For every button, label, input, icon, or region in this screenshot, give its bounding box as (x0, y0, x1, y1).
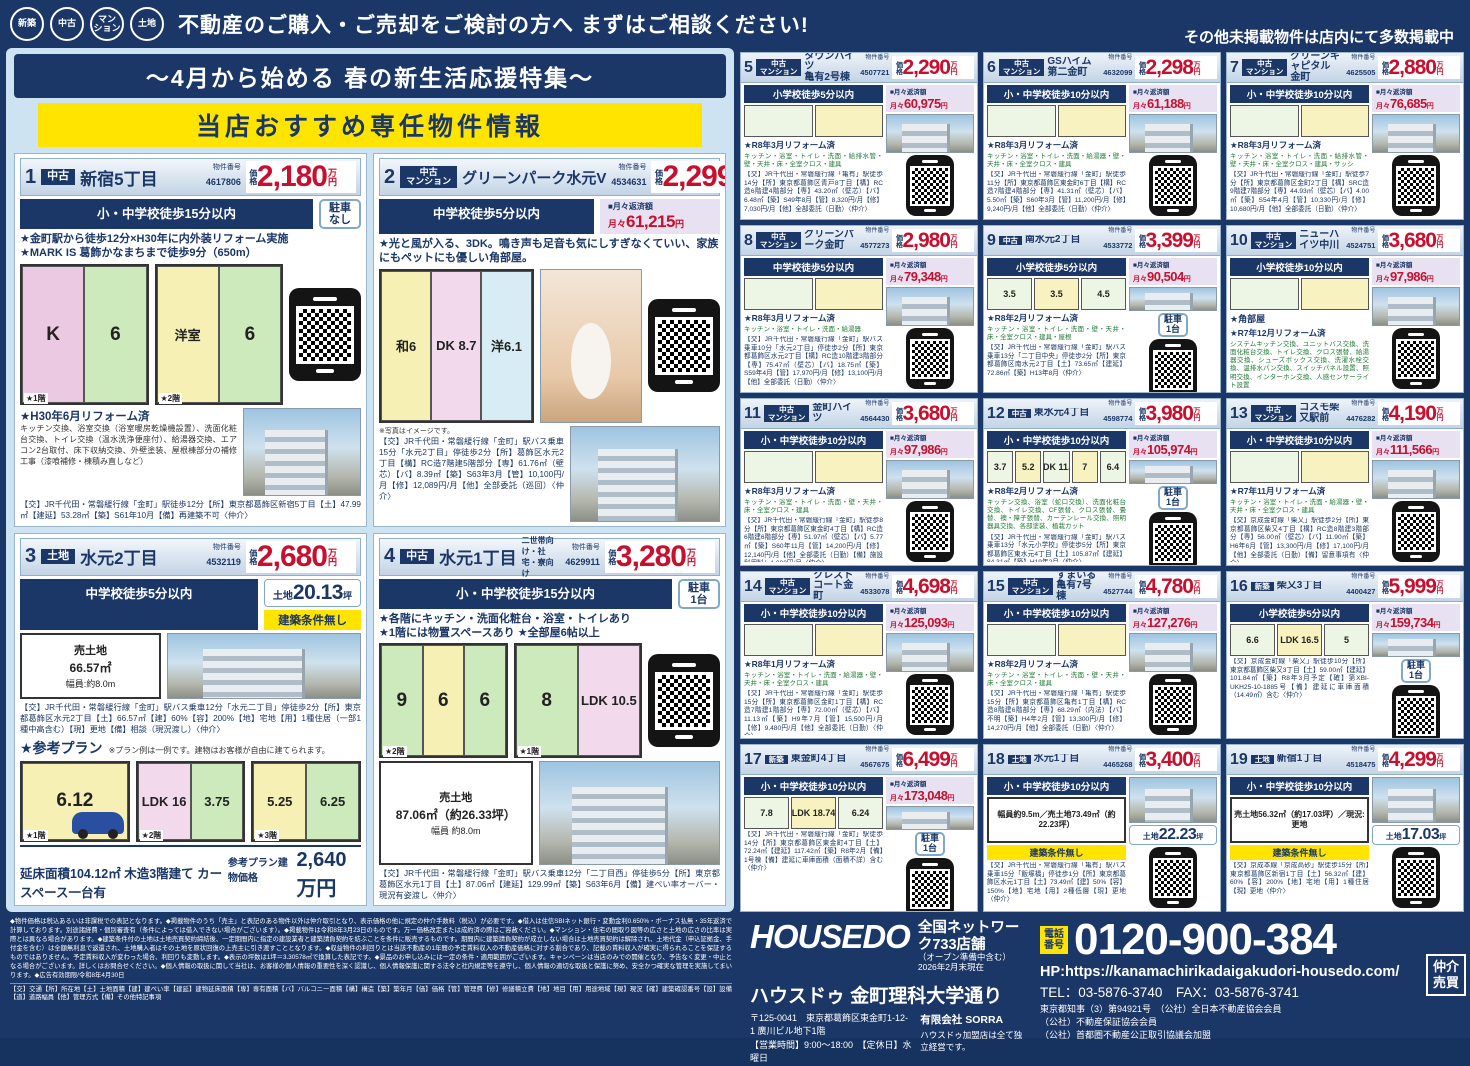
property-price: 価格3,680万円 (892, 402, 974, 425)
property-type-badge: 中古 マンション (765, 578, 811, 596)
plan-room (987, 105, 1056, 137)
mini-floor-plan (987, 105, 1126, 137)
property-photo (1129, 460, 1217, 484)
monthly-unit: 円 (1184, 274, 1191, 284)
school-distance-badge: 小・中学校徒歩10分以内 (987, 431, 1126, 449)
price-prefix: 価格 (1138, 753, 1145, 767)
property-number: 12 (987, 405, 1005, 423)
monthly-label: ■月々返済額 (1376, 605, 1456, 615)
monthly-payment: ■月々返済額 月々97,986円 (1372, 258, 1460, 285)
price-unit: 万円 (1193, 234, 1200, 248)
property-name: 水元1丁目 (439, 544, 516, 569)
qr-code-phone (906, 674, 954, 735)
reform-detail: キッチン交換、浴室交換（浴室暖房乾燥機設置）、洗面化粧台交換、トイレ交換（温水洗… (20, 424, 237, 467)
reform-title: ★R8年3月リフォーム済 (744, 485, 883, 497)
qr-code (655, 317, 713, 375)
property-description: 【交】JR千代田・常磐緩行線「亀有」駅徒歩15分【所】東京都葛飾区亀有1丁目【構… (987, 690, 1126, 735)
property-number: 10 (1230, 232, 1248, 250)
qr-code (1153, 350, 1193, 390)
qr-code (910, 685, 950, 725)
property-id-label: 物件番号 (1103, 574, 1132, 581)
monthly-unit: 円 (1434, 620, 1441, 630)
monthly-prefix: 月々 (1133, 447, 1147, 457)
property-id-label: 物件番号 (1346, 55, 1375, 62)
mini-floor-plan (1230, 278, 1369, 310)
property-price: 価格2,299万円 (651, 161, 726, 193)
reform-detail: キッチン・浴室・トイレ・洗面・給湯器・壁・天井・床・全室クロス・建具 (1230, 499, 1369, 515)
plan-room: 3.7 (987, 451, 1013, 483)
monthly-prefix: 月々 (890, 793, 904, 803)
plan-room: 7 (1072, 451, 1098, 483)
mini-floor-plan (744, 105, 883, 137)
monthly-payment: ■月々返済額 月々105,974円 (1129, 431, 1217, 458)
mini-floor-plan: 3.53.54.5 (987, 278, 1126, 310)
property-id: 物件番号4625505 (1346, 55, 1375, 79)
land-area-chip: 土地17.03坪 (1372, 825, 1460, 845)
property-price: 価格2,980万円 (892, 229, 974, 252)
qr-code (1396, 696, 1436, 736)
property-number: 14 (744, 578, 762, 596)
land-tsubo-value: 20.13 (293, 581, 343, 605)
property-id: 物件番号4567675 (860, 747, 889, 771)
plan-room: LDK 16.5 (1277, 624, 1322, 656)
property-id: 物件番号4598774 (1103, 401, 1132, 425)
property-price: 価格2,880万円 (1378, 56, 1460, 79)
monthly-value: 61,215 (626, 212, 675, 232)
property-name: グリーンパーク水元V (462, 167, 606, 188)
qr-code (910, 869, 950, 909)
qr-code-phone (1149, 339, 1197, 393)
property-name: クレストコート金町 (813, 571, 857, 602)
property-type-badge: 中古 マンション (756, 232, 802, 250)
property-id-value: 4465268 (1103, 760, 1132, 769)
phone-number: 0120-900-384 (1074, 918, 1336, 962)
plan-room (987, 624, 1056, 656)
monthly-label: ■月々返済額 (890, 86, 970, 96)
category-badge-land: 土地 (130, 7, 164, 41)
property-type-badge: 土地 (1008, 755, 1031, 765)
category-badge-new: 新築 (10, 7, 44, 41)
property-price: 価格4,780万円 (1135, 575, 1217, 598)
floor-label: ★2階 (159, 393, 183, 404)
property-price: 価格4,698万円 (892, 575, 974, 598)
price-unit: 万円 (950, 234, 957, 248)
property-name: すまいる亀有7号棟 (1056, 571, 1100, 602)
no-building-condition-badge: 建築条件無し (1230, 845, 1369, 860)
plan-summary: 延床面積104.12㎡ 木造3階建て カースペース一台有 (20, 863, 228, 901)
floor-label: ★2階 (383, 746, 407, 757)
reform-detail: キッチン・浴室・トイレ・洗面・給湯器・壁・天井・床・全室クロス・建具 (744, 672, 883, 688)
footer: ◆物件価格は税込あるいは非課税での表記となります。◆掲載物件のうち「売主」と表記… (0, 912, 1470, 1038)
plan-room: 6.6 (1230, 624, 1275, 656)
school-distance-badge: 小・中学校徒歩10分以内 (744, 777, 883, 795)
floor-plan-1f: K 6 ★1階 (20, 264, 149, 406)
monthly-label: ■月々返済額 (890, 605, 970, 615)
property-type-badge: 中古 マンション (764, 405, 810, 423)
plan-room (1301, 105, 1370, 137)
property-price: 価格3,280万円 (605, 541, 715, 573)
listing-body: 小学校徒歩5分以内 3.53.54.5 ★R8年2月リフォーム済 キッチン・浴室… (984, 256, 1220, 392)
mini-floor-plan: 7.8LDK 18.746.24 (744, 797, 883, 829)
mini-floor-plan (744, 624, 883, 656)
property-photo (1372, 777, 1460, 823)
price-unit: 万円 (950, 580, 957, 594)
property-photo (886, 287, 974, 326)
mini-floor-plan (744, 451, 883, 483)
plan-room: LDK 10.5 (578, 645, 640, 756)
floor-label: ★3階 (255, 830, 279, 841)
school-distance-badge: 中学校徒歩5分以内 (20, 579, 258, 630)
qr-code-phone (906, 858, 954, 912)
listing-card: 17 新築 東金町4丁目 物件番号4567675 価格6,499万円 小・中学校… (740, 744, 978, 912)
plan-room (815, 624, 884, 656)
monthly-value: 111,566 (1390, 442, 1432, 457)
land-diagram-area: 66.57㎡ (70, 659, 112, 676)
campaign-title: 〜4月から始める 春の新生活応援特集〜 (14, 54, 726, 98)
plan-room: 6 (84, 266, 146, 404)
property-description: 【交】JR千代田・常磐緩行線「金町」駅バス乗車12分「水元二丁目」停徒歩2分【所… (20, 702, 361, 735)
reform-detail: キッチン・浴室・トイレ・洗面・壁・天井・床・全室クロス・建具 (744, 499, 883, 515)
property-id-value: 4524751 (1346, 241, 1375, 250)
reform-detail: キッチン・浴室・トイレ・洗面・壁・天井・床・全室クロス・建具・屋根 (987, 326, 1126, 342)
property-id: 物件番号4632099 (1103, 55, 1132, 79)
parking-badge: 駐車 1台 (678, 579, 720, 609)
property-type-badge: 土地 (1251, 755, 1274, 765)
price-unit: 万円 (950, 407, 957, 421)
property-id: 物件番号4400427 (1346, 574, 1375, 598)
property-name: 柴又3丁目 (1277, 581, 1343, 592)
price-value: 3,280 (616, 542, 686, 572)
property-photo (1129, 777, 1217, 823)
listing-body: 小学校徒歩5分以内 ★R8年3月リフォーム済 キッチン・浴室・トイレ・洗面・給排… (741, 83, 977, 219)
mini-floor-plan (1230, 105, 1369, 137)
property-description: 【交】JR千代田・常磐緩行線「金町」駅徒歩14分【所】東京都葛飾区東金町4丁目【… (744, 831, 883, 908)
plan-room: 8 (516, 645, 578, 756)
monthly-value: 76,685 (1390, 96, 1427, 111)
property-description: 【交】京成金町線「柴又」駅徒歩10分【所】東京都葛飾区柴又3丁目【土】59.00… (1230, 658, 1369, 735)
corner-room-note: ★角部屋 (1230, 312, 1369, 325)
monthly-unit: 円 (1427, 101, 1434, 111)
property-id-value: 4577273 (860, 241, 889, 250)
phone-badge: 電話 番号 (1040, 926, 1068, 954)
reference-price-label: 参考プラン建物価格 (228, 854, 293, 884)
listing-header: 9 中古 南水元2丁目 物件番号4533772 価格3,399万円 (984, 226, 1220, 256)
listing-card: 9 中古 南水元2丁目 物件番号4533772 価格3,399万円 小学校徒歩5… (983, 225, 1221, 393)
plan-room (1230, 451, 1299, 483)
property-name: コスモ柴又駅前 (1299, 403, 1343, 424)
monthly-label: ■月々返済額 (890, 778, 970, 788)
land-diagram-width: 幅員:約8.0m (66, 677, 116, 690)
reform-title: ★R8年1月リフォーム済 (744, 658, 883, 670)
price-value: 2,980 (902, 230, 950, 251)
property-id: 物件番号4476282 (1346, 401, 1375, 425)
price-unit: 万円 (950, 753, 957, 767)
listing-header: 7 中古 マンション グリーンキャピタル 金町 物件番号4625505 価格2,… (1227, 53, 1463, 83)
reform-detail: キッチン・浴室・トイレ・洗面・給排水管・壁・天井・床・全室クロス・建具・サッシ (1230, 153, 1369, 169)
monthly-value: 127,276 (1147, 615, 1191, 630)
property-name: 水元2丁目 (80, 544, 157, 569)
price-unit: 万円 (950, 61, 957, 75)
main-headline: 不動産のご購入・ご売却をご検討の方へ まずはご相談ください! (178, 9, 809, 39)
price-unit: 万円 (327, 168, 336, 186)
abbreviation-legend: 【交】交通【所】所在地【土】土地面積【建】建ぺい率【建延】建物延床面積【専】専有… (10, 983, 732, 1004)
listing-header: 17 新築 東金町4丁目 物件番号4567675 価格6,499万円 (741, 745, 977, 775)
property-id-value: 4507721 (860, 68, 889, 77)
property-number: 16 (1230, 578, 1248, 596)
property-type-badge: 中古 マンション (756, 59, 802, 77)
land-diagram: 売土地 87.06㎡（約26.33坪） 幅員 約8.0m (379, 761, 533, 865)
property-price: 価格2,180万円 (246, 161, 356, 193)
land-diagram-area: 87.06㎡（約26.33坪） (396, 806, 516, 823)
sales-points: ★各階にキッチン・洗面化粧台・浴室・トイレあり ★1階には物置スペースあり ★全… (379, 612, 720, 641)
property-id: 物件番号4518475 (1346, 747, 1375, 771)
qr-code (655, 672, 713, 730)
mini-floor-plan (1230, 451, 1369, 483)
monthly-unit: 円 (1427, 274, 1434, 284)
website-url[interactable]: HP:https://kanamachirikadaigakudori-hous… (1040, 964, 1416, 980)
property-id-value: 4632099 (1103, 68, 1132, 77)
property-id-label: 物件番号 (860, 747, 889, 754)
property-id-label: 物件番号 (206, 164, 241, 172)
property-id-value: 4527744 (1103, 587, 1132, 596)
property-number: 3 (25, 545, 36, 568)
land-diagram: 幅員約9.5m／売土地73.49㎡（約22.23坪） (987, 797, 1126, 843)
featured-card-2: 2 中古 マンション グリーンパーク水元V 物件番号4534631 価格2,29… (373, 153, 726, 527)
plan-room (744, 451, 813, 483)
price-prefix: 価格 (1138, 61, 1145, 75)
property-description: 【交】JR千代田・常磐緩行線「金町」駅徒歩12分【所】東京都葛飾区新宿5丁目【土… (20, 499, 361, 521)
property-id: 物件番号4534631 (611, 164, 646, 189)
property-id: 物件番号4465268 (1103, 747, 1132, 771)
footer-disclaimer: ◆物件価格は税込あるいは非課税での表記となります。◆掲載物件のうち「売主」と表記… (0, 912, 742, 1038)
property-description: 【交】京成金町線「柴又」駅徒歩2分【所】東京都葛飾区柴又4丁目【構】RC造8階建… (1230, 517, 1369, 562)
plan-room: 洋6.1 (481, 271, 531, 421)
reference-plan-3f: 5.25 6.25 ★3階 (251, 761, 361, 842)
price-value: 3,980 (1145, 403, 1193, 424)
listing-header: 8 中古 マンション グリーンパーク金町 物件番号4577273 価格2,980… (741, 226, 977, 256)
photo-note: ※写真はイメージです。 (379, 426, 564, 436)
qr-code (1153, 523, 1193, 563)
reform-title: ★R8年2月リフォーム済 (987, 485, 1126, 497)
reform-title: ★R8年3月リフォーム済 (1230, 139, 1369, 151)
property-id: 物件番号4524751 (1346, 228, 1375, 252)
land-label: 土地 (1143, 831, 1159, 842)
property-photo (1372, 287, 1460, 326)
land-tsubo-value: 17.03 (1402, 826, 1440, 844)
property-name: タウンハイツ 亀有2号棟 (804, 52, 857, 83)
listing-header: 5 中古 マンション タウンハイツ 亀有2号棟 物件番号4507721 価格2,… (741, 53, 977, 83)
price-prefix: 価格 (1381, 407, 1388, 421)
monthly-prefix: 月々 (890, 447, 904, 457)
floor-label: ★1階 (24, 393, 48, 404)
property-price: 価格4,190万円 (1378, 402, 1460, 425)
property-name: 水元1丁目 (1034, 754, 1100, 765)
qr-code-phone (1392, 847, 1440, 908)
floor-label: ★2階 (140, 830, 164, 841)
monthly-unit: 円 (941, 101, 948, 111)
property-photo (886, 114, 974, 153)
school-distance-badge: 小学校徒歩5分以内 (744, 85, 883, 103)
qr-code-phone (1149, 155, 1197, 216)
listing-card: 12 中古 東水元4丁目 物件番号4598774 価格3,980万円 小・中学校… (983, 398, 1221, 566)
parking-badge: 駐車 1台 (1158, 313, 1188, 337)
price-prefix: 価格 (895, 753, 902, 767)
price-value: 2,180 (257, 162, 327, 192)
price-value: 3,680 (902, 403, 950, 424)
monthly-unit: 円 (941, 447, 948, 457)
qr-code-phone (906, 155, 954, 216)
qr-code-phone (906, 501, 954, 562)
property-id-value: 4629911 (565, 557, 600, 567)
listing-body: 小・中学校徒歩10分以内 7.8LDK 18.746.24 【交】JR千代田・常… (741, 775, 977, 911)
property-price: 価格6,499万円 (892, 748, 974, 771)
property-id-value: 4533772 (1103, 241, 1132, 250)
school-distance-badge: 小・中学校徒歩15分以内 (20, 199, 313, 229)
monthly-payment: ■月々返済額 月々127,276円 (1129, 604, 1217, 631)
monthly-unit: 円 (1432, 447, 1439, 457)
listing-header: 16 新築 柴又3丁目 物件番号4400427 価格5,999万円 (1227, 572, 1463, 602)
monthly-payment: ■月々返済額 月々159,734円 (1372, 604, 1460, 631)
floor-plan-1f: 8 LDK 10.5 ★1階 (514, 643, 643, 758)
listing-card: 7 中古 マンション グリーンキャピタル 金町 物件番号4625505 価格2,… (1226, 52, 1464, 220)
floor-label: ★1階 (24, 830, 48, 841)
qr-code (910, 166, 950, 206)
property-id-value: 4625505 (1346, 68, 1375, 77)
listing-header: 15 中古 マンション すまいる亀有7号棟 物件番号4527744 価格4,78… (984, 572, 1220, 602)
monthly-payment: ■月々返済額 月々61,215円 (600, 199, 720, 234)
qr-code-phone (648, 299, 720, 392)
listing-body: 小・中学校徒歩10分以内 幅員約9.5m／売土地73.49㎡（約22.23坪） … (984, 775, 1220, 911)
license-line: 東京都知事（3）第94921号 （公社）全日本不動産協会会員 (1040, 1003, 1416, 1016)
price-prefix: 価格 (249, 549, 257, 565)
land-diagram-title: 売土地 (74, 642, 107, 658)
listings-grid: 5 中古 マンション タウンハイツ 亀有2号棟 物件番号4507721 価格2,… (740, 52, 1464, 912)
property-photo (1372, 460, 1460, 499)
price-prefix: 価格 (1381, 753, 1388, 767)
monthly-value: 125,093 (904, 615, 948, 630)
price-value: 4,299 (1388, 749, 1436, 770)
price-unit: 万円 (327, 548, 336, 566)
plan-room: 4.5 (1081, 278, 1126, 310)
property-photo (1129, 287, 1217, 311)
property-photo (886, 460, 974, 499)
property-type-badge: 中古 (41, 169, 75, 185)
floor-plan: 和6 DK 8.7 洋6.1 (379, 269, 534, 423)
reform-title: ★R8年3月リフォーム済 (744, 139, 883, 151)
monthly-label: ■月々返済額 (890, 259, 970, 269)
qr-code-phone (289, 288, 361, 381)
price-unit: 万円 (1193, 753, 1200, 767)
property-id-label: 物件番号 (860, 228, 889, 235)
property-name: 新宿1丁目 (1277, 754, 1343, 765)
qr-code (910, 512, 950, 552)
school-distance-badge: 中学校徒歩5分以内 (744, 258, 883, 276)
monthly-label: ■月々返済額 (1376, 86, 1456, 96)
listing-header: 19 土地 新宿1丁目 物件番号4518475 価格4,299万円 (1227, 745, 1463, 775)
property-number: 7 (1230, 59, 1239, 77)
parking-badge: 駐車 1台 (915, 832, 945, 856)
monthly-label: ■月々返済額 (1376, 259, 1456, 269)
plan-room (1058, 624, 1127, 656)
monthly-value: 159,734 (1390, 615, 1434, 630)
store-name: ハウスドゥ 金町理科大学通り (750, 981, 1026, 1008)
property-number: 19 (1230, 751, 1248, 769)
property-id: 物件番号4577273 (860, 228, 889, 252)
monthly-unit: 円 (941, 274, 948, 284)
property-id-value: 4598774 (1103, 414, 1132, 423)
property-id-label: 物件番号 (565, 544, 600, 552)
price-value: 3,399 (1145, 230, 1193, 251)
school-distance-badge: 小・中学校徒歩10分以内 (744, 604, 883, 622)
property-name: グリーンキャピタル 金町 (1290, 52, 1343, 83)
reference-plan-title: ★参考プラン (20, 738, 103, 758)
monthly-prefix: 月々 (1376, 274, 1390, 284)
qr-code-phone (1149, 674, 1197, 735)
property-description: 【交】JR千代田・常磐緩行線「金町」駅バス乗車15分「水元2丁目」停徒歩2分【所… (379, 436, 564, 502)
no-building-condition-badge: 建築条件無し (987, 845, 1126, 860)
property-name: 東水元4丁目 (1034, 408, 1100, 419)
property-number: 17 (744, 751, 762, 769)
property-id: 物件番号4527744 (1103, 574, 1132, 598)
store-hours: 【営業時間】9:00〜18:00 【定休日】水曜日 (750, 1039, 912, 1066)
school-distance-badge: 小・中学校徒歩15分以内 (379, 579, 672, 609)
license-line: （公社）首都圏不動産公正取引協議会加盟 (1040, 1029, 1416, 1042)
listing-card: 15 中古 マンション すまいる亀有7号棟 物件番号4527744 価格4,78… (983, 571, 1221, 739)
price-prefix: 価格 (1381, 61, 1388, 75)
property-name: 新宿5丁目 (80, 165, 157, 190)
price-value: 4,698 (902, 576, 950, 597)
qr-code-phone (1392, 328, 1440, 389)
listing-card: 5 中古 マンション タウンハイツ 亀有2号棟 物件番号4507721 価格2,… (740, 52, 978, 220)
monthly-label: ■月々返済額 (1133, 432, 1213, 442)
network-count: 全国ネットワーク733店舗（オープン準備中含む）2026年2月末現在 (918, 920, 1026, 973)
plan-room: 5.2 (1015, 451, 1041, 483)
price-unit: 万円 (1193, 61, 1200, 75)
property-id-label: 物件番号 (860, 401, 889, 408)
monthly-payment: ■月々返済額 月々125,093円 (886, 604, 974, 631)
school-distance-badge: 小・中学校徒歩10分以内 (1230, 777, 1369, 795)
listing-header: 12 中古 東水元4丁目 物件番号4598774 価格3,980万円 (984, 399, 1220, 429)
reform-detail: キッチン交換、浴室（蛇口交換）、洗面化粧台交換、トイレ交換、CF張替、クロス張替… (987, 499, 1126, 532)
property-name: ニューハイツ中川 (1299, 230, 1343, 251)
monthly-unit: 円 (948, 620, 955, 630)
monthly-payment: ■月々返済額 月々76,685円 (1372, 85, 1460, 112)
qr-code (1396, 166, 1436, 206)
listing-card: 11 中古 マンション 金町ハイツ 物件番号4564430 価格3,680万円 … (740, 398, 978, 566)
plan-room (1301, 278, 1370, 310)
monthly-unit: 円 (1191, 620, 1198, 630)
monthly-prefix: 月々 (1376, 101, 1390, 111)
plan-room: 6.4 (1100, 451, 1126, 483)
parking-badge: 駐車 1台 (1401, 659, 1431, 683)
price-unit: 万円 (1193, 407, 1200, 421)
property-number: 2 (384, 166, 395, 189)
property-description: 【交】JR千代田・常磐緩行線「金町」駅バス乗車10分「水元2丁目」停徒歩2分【所… (744, 336, 883, 389)
price-value: 4,780 (1145, 576, 1193, 597)
monthly-payment: ■月々返済額 月々90,504円 (1129, 258, 1217, 285)
property-description: 【交】JR千代田・常磐緩行線「金町」駅徒歩15分【所】東京都葛飾区金町1丁目【構… (744, 690, 883, 735)
property-name: GSハイム第二金町 (1047, 57, 1100, 78)
network-note: （オープン準備中含む）2026年2月末現在 (918, 953, 1026, 973)
school-distance-badge: 小・中学校徒歩10分以内 (987, 604, 1126, 622)
reform-title: ★R8年2月リフォーム済 (987, 312, 1126, 324)
listing-card: 10 中古 マンション ニューハイツ中川 物件番号4524751 価格3,680… (1226, 225, 1464, 393)
footer-brand: HOUSEDO 全国ネットワーク733店舗（オープン準備中含む）2026年2月末… (742, 912, 1030, 1038)
qr-code-phone (906, 328, 954, 389)
property-id: 物件番号4629911 (565, 544, 600, 569)
reference-plan-note: ※プラン例は一例です。建物はお客様が自由に建てられます。 (109, 745, 330, 756)
property-id-value: 4532119 (206, 557, 241, 567)
